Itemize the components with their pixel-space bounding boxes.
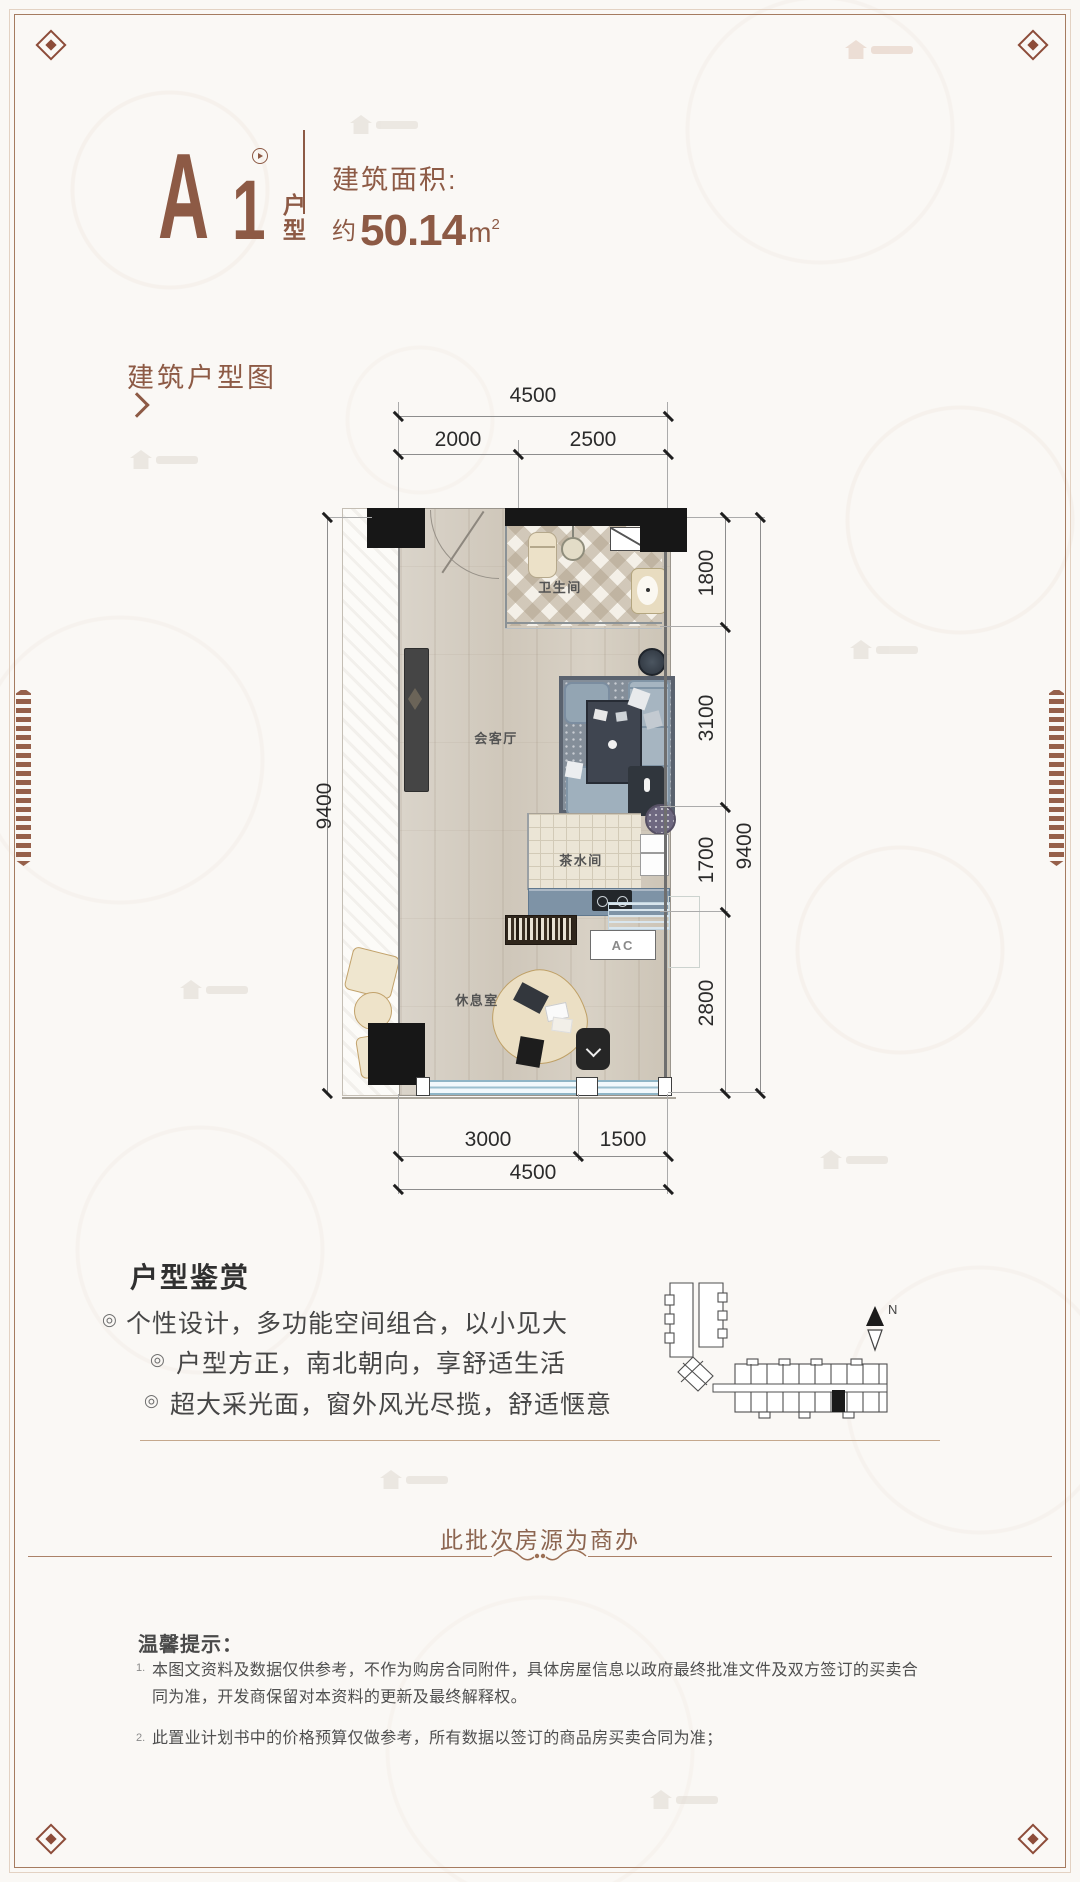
sill-line (342, 1097, 676, 1099)
toilet (528, 532, 557, 578)
dim-line (398, 1156, 668, 1157)
tip-number: 2. (136, 1732, 145, 1744)
tips-title: 温馨提示： (138, 1628, 243, 1657)
unit-letter: A (158, 149, 209, 244)
dim-line (398, 1189, 668, 1190)
flourish-line-left (28, 1556, 492, 1557)
toilet-seam (530, 546, 555, 548)
flourish-ornament-icon (492, 1546, 588, 1566)
area-value-row: 约 50.14 m 2 (332, 211, 500, 251)
area-value: 50.14 (360, 211, 465, 251)
room-label-rest: 休息室 (438, 990, 516, 1009)
wall (640, 508, 687, 552)
wall (368, 1023, 425, 1085)
area-exponent: 2 (491, 216, 499, 233)
ac-hatch (608, 902, 670, 930)
bullet-icon: ◎ (102, 1310, 117, 1330)
area-label: 建筑面积: (332, 158, 500, 197)
dim-right-1800: 1800 (695, 518, 719, 628)
plant (638, 648, 666, 676)
books (508, 918, 572, 940)
wall (505, 508, 640, 526)
book (615, 711, 627, 721)
tea-room-partition (527, 813, 529, 890)
dim-bottom-right: 1500 (578, 1128, 668, 1152)
dim-right-1700: 1700 (695, 805, 719, 915)
area-approx: 约 (332, 211, 356, 246)
section-divider (140, 1440, 940, 1441)
cup (608, 740, 617, 749)
pouf (645, 804, 676, 835)
paper (551, 1017, 573, 1034)
room-label-tea: 茶水间 (542, 850, 620, 869)
plan-section-title: 建筑户型图 (127, 356, 277, 395)
left-edge-ornament-icon (16, 688, 31, 866)
bullet-icon: ◎ (150, 1350, 165, 1370)
appreciation-title: 户型鉴赏 (130, 1256, 250, 1296)
sink-drain (646, 588, 650, 592)
room-label-living: 会客厅 (458, 728, 534, 747)
bathroom-glass-line (505, 622, 662, 624)
shower-head (561, 537, 585, 561)
dim-right-3100: 3100 (695, 663, 719, 773)
ext-line (327, 517, 372, 518)
desk-mat (516, 1036, 544, 1068)
brochure-page: A 1 户 型 建筑面积: 约 50.14 m 2 建筑户型图 (0, 0, 1080, 1882)
dim-right-total: 9400 (733, 791, 757, 901)
appreciation-bullet: 超大采光面，窗外风光尽揽，舒适惬意 (170, 1385, 612, 1421)
unit-title: A 1 户 型 (158, 148, 307, 244)
pillow (565, 761, 584, 780)
appreciation-bullet: 个性设计，多功能空间组合，以小见大 (126, 1304, 568, 1340)
left-wall-line (398, 548, 400, 1023)
ac-unit: AC (590, 930, 656, 960)
header-divider (303, 130, 305, 214)
flourish-line-right (588, 1556, 1052, 1557)
appreciation-bullet: 户型方正，南北朝向，享舒适生活 (176, 1344, 566, 1380)
bullet-icon: ◎ (144, 1391, 159, 1411)
right-wall-line (664, 552, 667, 1082)
burner (597, 896, 608, 907)
wall (367, 508, 425, 548)
bottle (644, 778, 650, 792)
tip-text: 此置业计划书中的价格预算仅做参考，所有数据以签订的商品房买卖合同为准； (152, 1726, 972, 1753)
area-block: 建筑面积: 约 50.14 m 2 (332, 158, 500, 251)
tip-number: 1. (136, 1662, 145, 1674)
registered-badge-icon (252, 148, 268, 164)
dim-top-right: 2500 (518, 428, 668, 452)
dim-bottom-left: 3000 (398, 1128, 578, 1152)
tip-text: 本图文资料及数据仅供参考，不作为购房合同附件，具体房屋信息以政府最终批准文件及双… (152, 1658, 924, 1712)
north-compass-icon (864, 1306, 886, 1352)
right-edge-ornament-icon (1049, 688, 1064, 866)
north-label: N (888, 1302, 897, 1317)
dim-bottom-total: 4500 (398, 1161, 668, 1185)
bathroom-glass-line2 (505, 628, 662, 629)
dim-top-left: 2000 (398, 428, 518, 452)
tv-cabinet (404, 648, 429, 792)
unit-number: 1 (232, 177, 266, 244)
highlighted-unit (832, 1390, 845, 1412)
dim-top-total: 4500 (398, 384, 668, 408)
window-band (424, 1080, 662, 1095)
area-unit: m (468, 217, 491, 249)
bathroom-partition (505, 526, 507, 628)
dim-right-2800: 2800 (695, 948, 719, 1058)
dim-line (398, 454, 668, 455)
window-mullion (658, 1077, 672, 1096)
fridge-seam (640, 852, 667, 854)
window-mullion (416, 1077, 430, 1096)
dim-line (398, 416, 668, 417)
dim-left-total: 9400 (313, 751, 337, 861)
dim-line (760, 517, 761, 1093)
room-label-bathroom: 卫生间 (515, 577, 605, 596)
window-mullion (576, 1077, 598, 1096)
ext-line (668, 1092, 765, 1093)
